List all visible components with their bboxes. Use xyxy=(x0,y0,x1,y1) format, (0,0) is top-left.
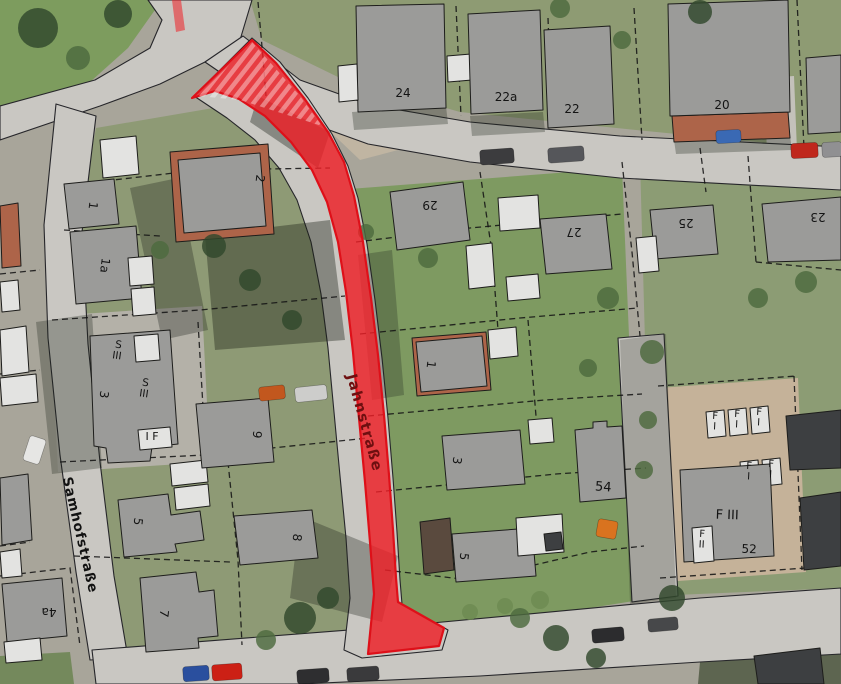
building-footprint xyxy=(650,205,718,259)
house-number-label: 23 xyxy=(810,210,825,224)
building-footprint xyxy=(128,256,154,286)
house-number-label: 20 xyxy=(714,98,729,112)
tree-shadow xyxy=(470,112,545,136)
aerial-map-svg: 2422a222029272523211a3I F574a9813554F II… xyxy=(0,0,841,684)
building-footprint xyxy=(178,153,266,233)
tree xyxy=(256,630,276,650)
building-footprint xyxy=(528,418,554,444)
tree xyxy=(635,461,653,479)
tree xyxy=(66,46,90,70)
building-footprint xyxy=(498,195,540,231)
tree xyxy=(748,288,768,308)
house-number-label: 27 xyxy=(566,225,581,239)
tree xyxy=(104,0,132,28)
building-footprint xyxy=(544,532,563,551)
building-footprint xyxy=(762,197,841,262)
house-number-label: 4a xyxy=(42,605,57,619)
tree xyxy=(640,340,664,364)
building-footprint xyxy=(806,55,841,134)
tree xyxy=(284,602,316,634)
building-footprint xyxy=(786,410,841,470)
building-footprint xyxy=(506,274,540,301)
building-footprint xyxy=(4,638,42,663)
tree-shadow xyxy=(205,220,345,350)
tree xyxy=(317,587,339,609)
building-footprint xyxy=(466,243,495,289)
parked-car xyxy=(347,666,380,682)
tree xyxy=(18,8,58,48)
house-number-label: F III xyxy=(715,508,739,524)
tree xyxy=(597,287,619,309)
building-footprint xyxy=(636,236,659,273)
tree xyxy=(151,241,169,259)
tree xyxy=(586,648,606,668)
parked-car xyxy=(647,617,678,633)
tree xyxy=(579,359,597,377)
tree xyxy=(497,598,513,614)
parked-car xyxy=(716,129,742,143)
building-footprint xyxy=(540,214,612,274)
building-footprint xyxy=(0,549,22,578)
parked-car xyxy=(591,627,624,644)
building-footprint xyxy=(174,484,210,510)
tree xyxy=(202,234,226,258)
map-viewport[interactable]: 2422a222029272523211a3I F574a9813554F II… xyxy=(0,0,841,684)
building-footprint xyxy=(234,510,318,565)
house-number-label: 22 xyxy=(564,102,579,116)
parked-car xyxy=(297,668,330,684)
parked-car xyxy=(480,148,515,165)
tree xyxy=(659,585,685,611)
building-footprint xyxy=(390,182,470,250)
house-number-label: 29 xyxy=(422,198,437,212)
tree xyxy=(688,0,712,24)
parked-car xyxy=(548,146,585,163)
house-number-label: 54 xyxy=(594,479,612,495)
tree xyxy=(510,608,530,628)
house-number-label: I F xyxy=(145,430,158,443)
house-number-label: 22a xyxy=(495,90,518,104)
tree xyxy=(531,591,549,609)
building-footprint xyxy=(488,327,518,359)
house-number-label: 52 xyxy=(741,542,757,557)
tree xyxy=(639,411,657,429)
parked-car xyxy=(822,141,841,157)
house-number-label: 25 xyxy=(678,216,693,230)
parked-car xyxy=(183,665,210,682)
building-footprint xyxy=(100,136,139,178)
building-footprint xyxy=(420,518,454,574)
tree xyxy=(418,248,438,268)
tree xyxy=(282,310,302,330)
tree xyxy=(543,625,569,651)
parked-car xyxy=(258,385,285,402)
building-footprint xyxy=(131,287,156,316)
building-footprint xyxy=(338,64,358,102)
building-footprint xyxy=(800,492,841,570)
building-footprint xyxy=(447,54,472,82)
building-footprint xyxy=(0,374,38,406)
tree xyxy=(239,269,261,291)
building-footprint xyxy=(0,326,29,376)
building-footprint xyxy=(0,280,20,312)
building-footprint xyxy=(134,334,160,362)
tree xyxy=(795,271,817,293)
tree xyxy=(613,31,631,49)
house-number-label: 1a xyxy=(97,257,113,274)
house-number-label: 24 xyxy=(395,86,410,100)
parked-car xyxy=(791,142,819,158)
building-footprint xyxy=(0,474,32,545)
tree xyxy=(462,604,478,620)
parked-car xyxy=(211,663,242,681)
parked-car xyxy=(294,384,327,402)
parked-car xyxy=(596,518,619,539)
building-footprint xyxy=(0,203,21,268)
